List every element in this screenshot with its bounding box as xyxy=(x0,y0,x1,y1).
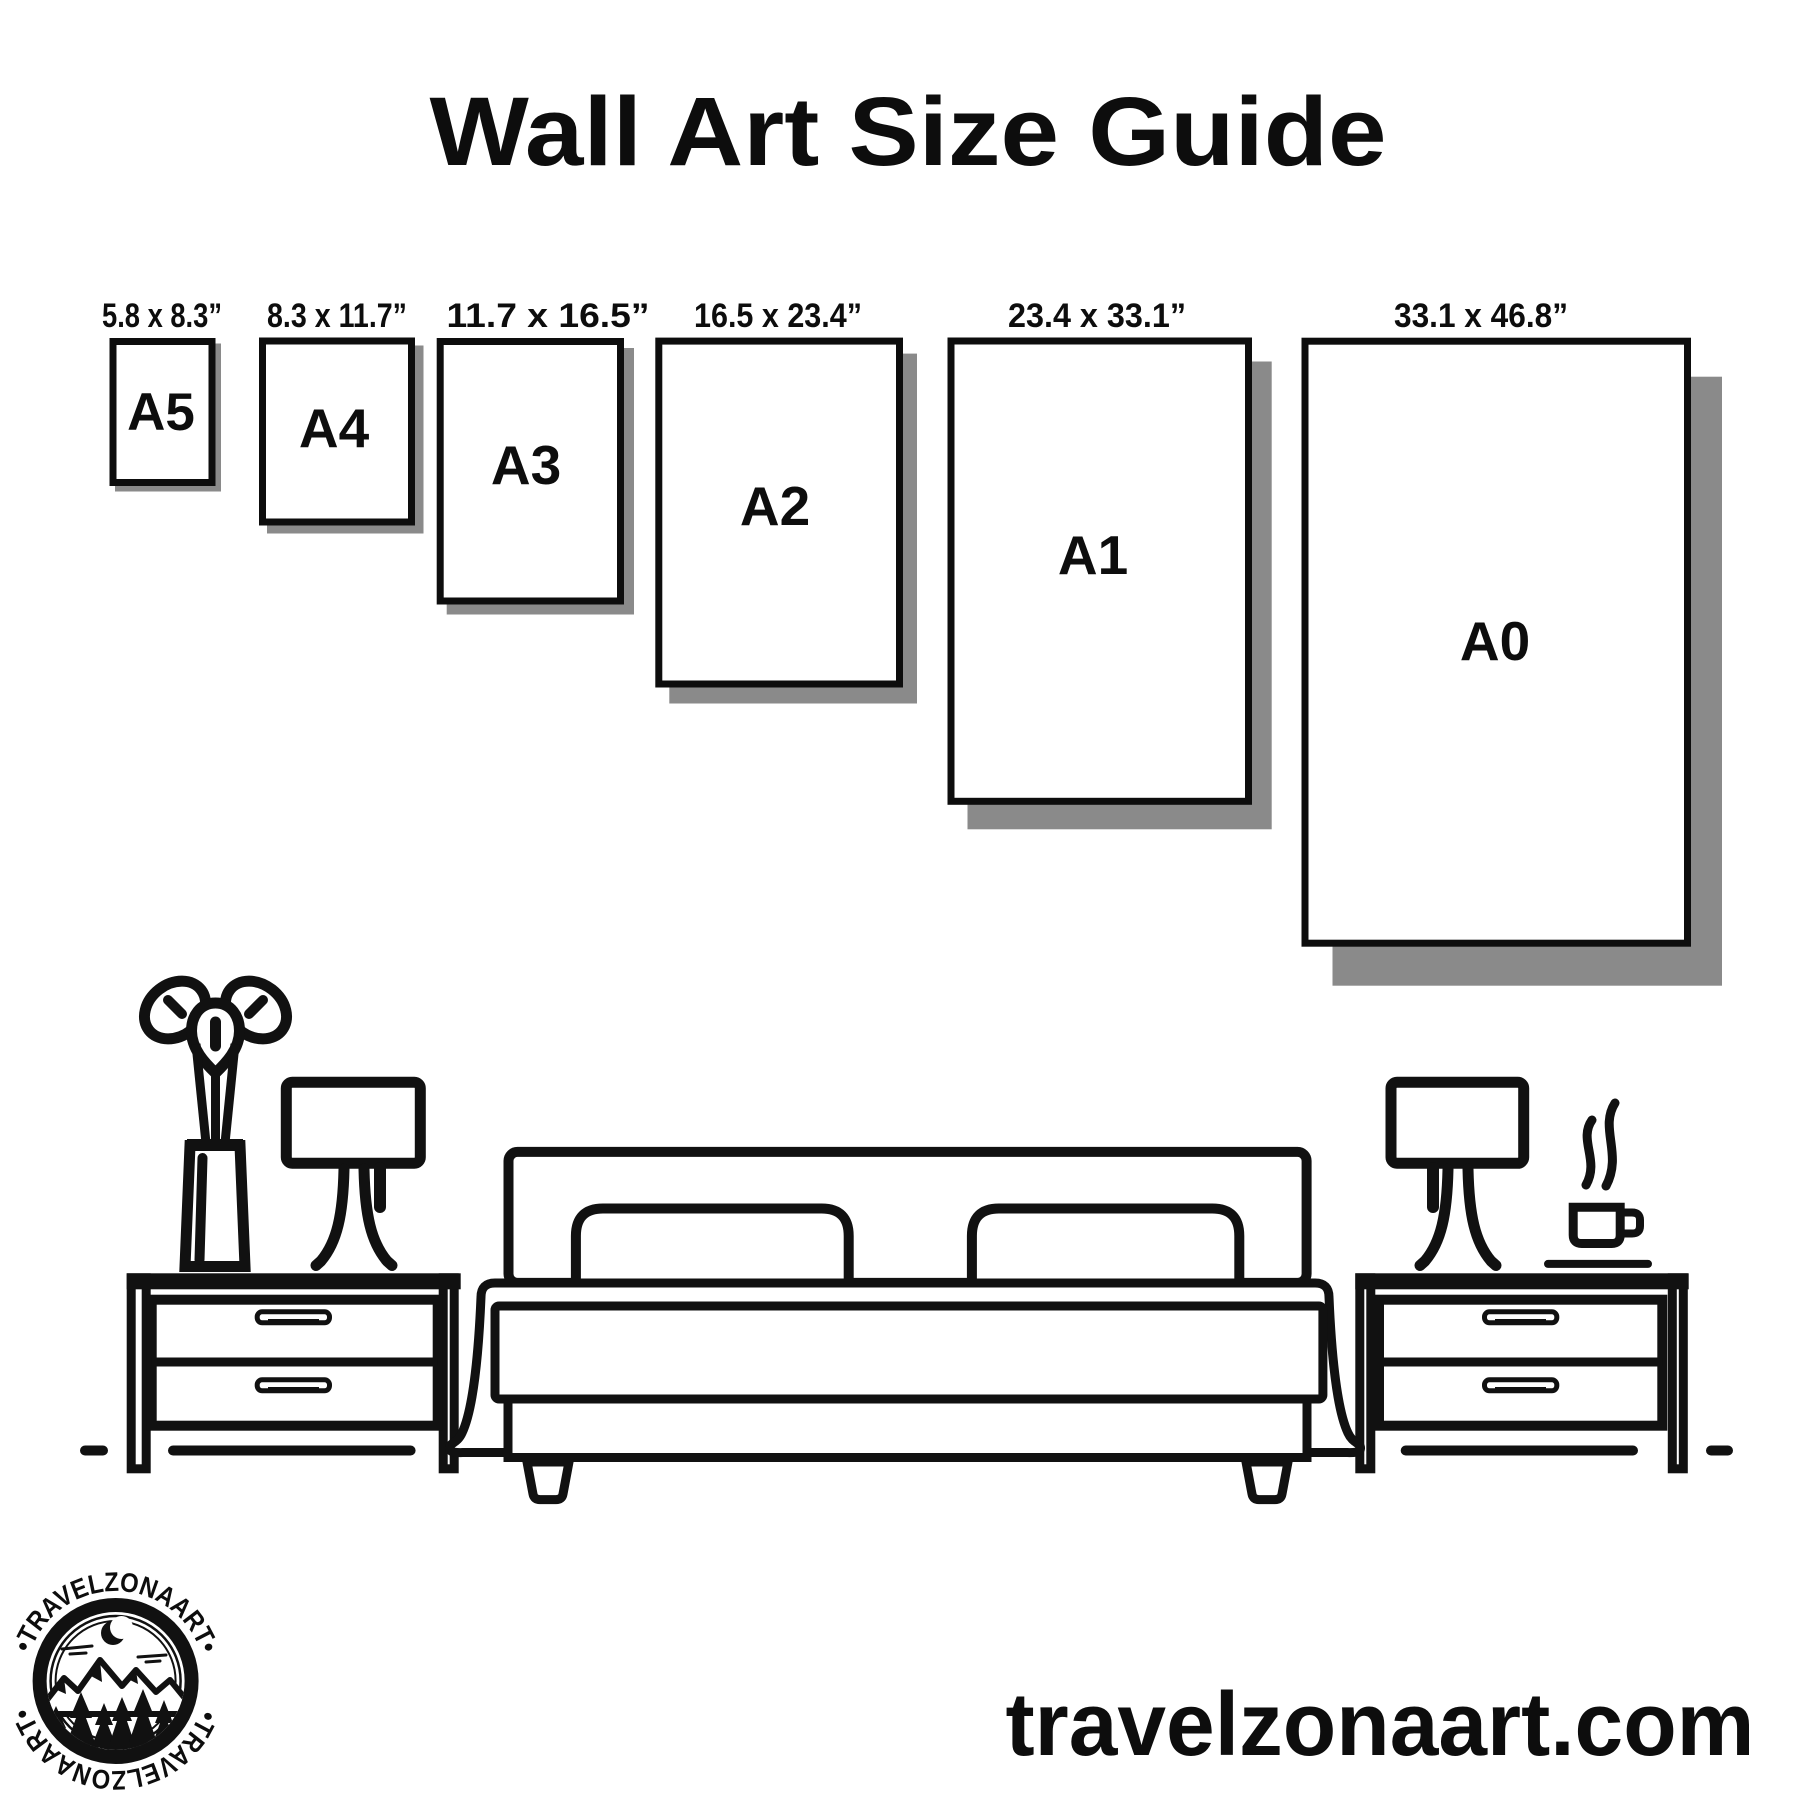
svg-text:A0: A0 xyxy=(1460,610,1530,672)
svg-text:33.1 x 46.8”: 33.1 x 46.8” xyxy=(1394,297,1568,335)
svg-text:A3: A3 xyxy=(491,434,561,496)
svg-text:23.4 x 33.1”: 23.4 x 33.1” xyxy=(1008,297,1186,335)
svg-text:A5: A5 xyxy=(127,383,195,442)
svg-text:A1: A1 xyxy=(1058,524,1128,586)
svg-text:A4: A4 xyxy=(299,397,370,459)
svg-text:11.7 x 16.5”: 11.7 x 16.5” xyxy=(447,297,650,335)
svg-text:A2: A2 xyxy=(740,475,810,537)
svg-text:16.5 x 23.4”: 16.5 x 23.4” xyxy=(694,297,862,335)
svg-text:5.8 x 8.3”: 5.8 x 8.3” xyxy=(102,297,222,335)
svg-text:Wall Art Size Guide: Wall Art Size Guide xyxy=(430,77,1387,186)
svg-text:8.3 x 11.7”: 8.3 x 11.7” xyxy=(267,297,407,335)
svg-text:travelzonaart.com: travelzonaart.com xyxy=(1006,1675,1755,1775)
